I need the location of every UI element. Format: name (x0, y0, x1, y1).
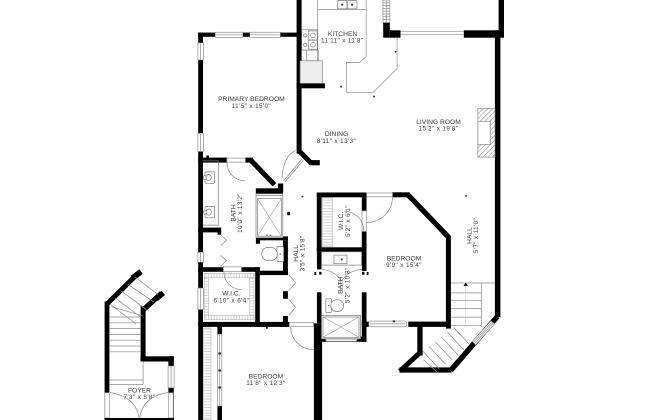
svg-text:7'3" x 8'8": 7'3" x 8'8" (124, 394, 156, 401)
svg-text:10'0" x 13'2": 10'0" x 13'2" (237, 193, 244, 233)
svg-text:5'2" x 10'8": 5'2" x 10'8" (345, 267, 352, 303)
svg-text:11'8" x 12'3": 11'8" x 12'3" (246, 380, 285, 387)
svg-text:9'9" x 15'4": 9'9" x 15'4" (386, 262, 422, 269)
svg-text:15'2" x 19'8": 15'2" x 19'8" (419, 126, 459, 133)
svg-text:5'7" x 11'0": 5'7" x 11'0" (473, 218, 480, 253)
svg-text:11'11" x 11'8": 11'11" x 11'8" (321, 37, 363, 44)
svg-text:8'11" x 13'3": 8'11" x 13'3" (317, 138, 356, 145)
svg-text:11'5" x 15'0": 11'5" x 15'0" (232, 103, 271, 110)
svg-text:6'10" x 6'4": 6'10" x 6'4" (213, 297, 249, 304)
svg-text:3'5" x 15'8": 3'5" x 15'8" (300, 235, 307, 271)
svg-text:5'2" x 6'1": 5'2" x 6'1" (345, 205, 352, 237)
